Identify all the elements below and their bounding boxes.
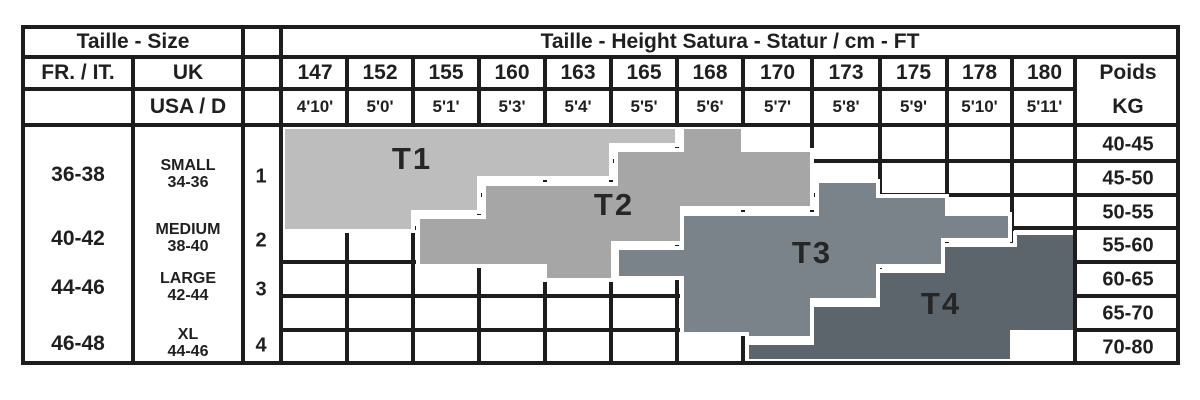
height-cm-cell: 170 xyxy=(760,62,795,84)
grid-line xyxy=(1073,55,1077,365)
height-cm-cell: 175 xyxy=(896,62,931,84)
weight-kg-cell: 50-55 xyxy=(1102,202,1153,223)
grid-line xyxy=(279,27,283,365)
height-cm-cell: 165 xyxy=(626,62,661,84)
col-header-usa-d: USA / D xyxy=(150,96,226,118)
size-uk-cell: LARGE42-44 xyxy=(160,271,216,305)
size-index-cell: 3 xyxy=(255,280,266,301)
height-cm-cell: 178 xyxy=(962,62,997,84)
height-ft-cell: 5'5' xyxy=(631,98,658,116)
height-cm-cell: 173 xyxy=(828,62,863,84)
height-cm-cell: 152 xyxy=(362,62,397,84)
grid-line xyxy=(23,123,1180,127)
height-ft-cell: 5'6' xyxy=(697,98,724,116)
height-ft-cell: 5'4' xyxy=(565,98,592,116)
size-uk-cell: MEDIUM38-40 xyxy=(156,222,221,256)
height-ft-cell: 5'7' xyxy=(764,98,791,116)
weight-kg-cell: 65-70 xyxy=(1102,304,1153,325)
height-cm-cell: 180 xyxy=(1027,62,1062,84)
col-header-kg: KG xyxy=(1112,96,1144,118)
size-zone-label-t4: T4 xyxy=(921,286,961,321)
weight-kg-cell: 70-80 xyxy=(1102,337,1153,358)
height-title: Taille - Height Satura - Statur / cm - F… xyxy=(541,31,920,53)
height-ft-cell: 5'9' xyxy=(900,98,927,116)
height-ft-cell: 5'3' xyxy=(499,98,526,116)
height-ft-cell: 5'0' xyxy=(367,98,394,116)
col-header-poids: Poids xyxy=(1099,62,1156,84)
height-ft-cell: 4'10' xyxy=(297,98,333,116)
size-uk-cell: XL44-46 xyxy=(168,327,209,361)
size-zone-label-t1: T1 xyxy=(392,141,432,176)
size-zone-label-t2: T2 xyxy=(594,187,634,222)
height-ft-cell: 5'11' xyxy=(1027,98,1063,116)
size-index-cell: 4 xyxy=(255,336,266,357)
size-fr-it-cell: 44-46 xyxy=(51,277,105,299)
size-index-cell: 2 xyxy=(255,231,266,252)
weight-kg-cell: 55-60 xyxy=(1102,236,1153,257)
height-cm-cell: 147 xyxy=(297,62,332,84)
size-fr-it-cell: 46-48 xyxy=(51,333,105,355)
col-header-uk: UK xyxy=(173,62,203,84)
size-uk-cell: SMALL34-36 xyxy=(160,158,215,192)
height-cm-cell: 168 xyxy=(692,62,727,84)
size-fr-it-cell: 36-38 xyxy=(51,164,105,186)
col-header-fr-it: FR. / IT. xyxy=(41,62,115,84)
size-title: Taille - Size xyxy=(77,31,190,53)
size-zone-label-t3: T3 xyxy=(792,235,832,270)
height-ft-cell: 5'1' xyxy=(433,98,460,116)
size-index-cell: 1 xyxy=(255,167,266,188)
height-cm-cell: 155 xyxy=(428,62,463,84)
height-ft-cell: 5'10' xyxy=(961,98,997,116)
weight-kg-cell: 45-50 xyxy=(1102,169,1153,190)
weight-kg-cell: 60-65 xyxy=(1102,270,1153,291)
weight-kg-cell: 40-45 xyxy=(1102,135,1153,156)
height-cm-cell: 163 xyxy=(560,62,595,84)
height-ft-cell: 5'8' xyxy=(833,98,860,116)
height-cm-cell: 160 xyxy=(494,62,529,84)
size-chart-table: T1T2T3T4 Taille - Size Taille - Height S… xyxy=(0,0,1200,400)
size-fr-it-cell: 40-42 xyxy=(51,228,105,250)
